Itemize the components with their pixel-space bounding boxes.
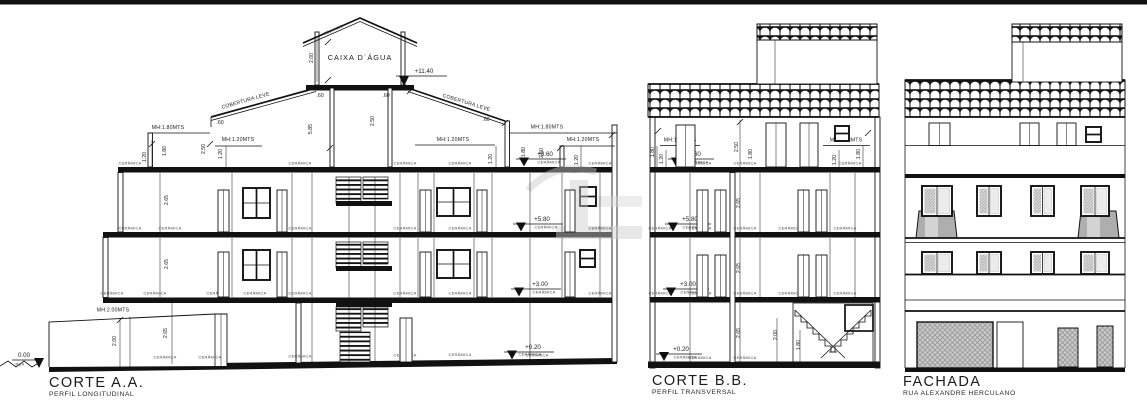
dim-label: 1.20 bbox=[659, 154, 665, 164]
window-pane bbox=[991, 255, 999, 272]
parapet-height-label: MH:1.80MTS bbox=[531, 125, 564, 131]
staircase bbox=[793, 303, 873, 362]
ceramica-label: CERÂMICA bbox=[449, 291, 472, 296]
elevation-300-label: +3.00 bbox=[680, 281, 696, 288]
window-pane bbox=[1084, 189, 1094, 214]
corte-aa-subtitle: PERFIL LONGITUDINAL bbox=[49, 391, 134, 398]
slab-300 bbox=[103, 298, 617, 304]
parapet-wall bbox=[560, 146, 564, 167]
ceramica-label: CERÂMICA bbox=[144, 291, 167, 296]
slab-band bbox=[905, 174, 1125, 178]
dim-label: 5.85 bbox=[308, 124, 314, 134]
ceramica-label: CERÂMICA bbox=[533, 290, 556, 295]
ground-floor-openings bbox=[917, 322, 1113, 368]
dim-label: 2.50 bbox=[370, 116, 376, 126]
roof-slope-right bbox=[408, 88, 505, 121]
street-level-arrow bbox=[34, 358, 44, 368]
ceramica-label: CERÂMICA bbox=[734, 226, 757, 231]
dim-label: 2.00 bbox=[309, 53, 315, 63]
ceramica-label: CERÂMICA bbox=[674, 355, 697, 360]
dim-label: 2.50 bbox=[201, 144, 207, 154]
roof-tiles bbox=[757, 24, 877, 40]
dim-label: 2.65 bbox=[736, 328, 742, 338]
window-pane bbox=[980, 189, 988, 214]
corte-aa-section: 0.00 RUA MH:2.00MTS 2.00 2.65 MH:1.80MTS… bbox=[0, 18, 617, 372]
ceramica-label: CERÂMICA bbox=[526, 353, 549, 358]
parapet-height-label: MH:1.20MTS bbox=[567, 137, 600, 143]
roof-label: COBERTURA LEVE bbox=[442, 93, 492, 113]
dim-label: 1.80 bbox=[650, 147, 656, 157]
elevation-020-label: +0.20 bbox=[673, 346, 689, 353]
ceramica-label: CERÂMICA bbox=[449, 226, 472, 231]
stair-tower-wall bbox=[330, 88, 334, 167]
dim-label: 1.20 bbox=[218, 149, 224, 159]
ceramica-label: CERÂMICA bbox=[289, 291, 312, 296]
window-pane bbox=[991, 189, 999, 214]
entrance-opening bbox=[997, 322, 1023, 368]
elevation-1140-label: +11.40 bbox=[415, 68, 434, 75]
ceramica-label: CERÂMICA bbox=[119, 161, 142, 166]
slab-300 bbox=[650, 297, 880, 303]
dim-tick bbox=[325, 39, 331, 45]
parapet-wall bbox=[505, 121, 510, 167]
ceramica-label: CERÂMICA bbox=[734, 161, 757, 166]
slab-580 bbox=[103, 232, 617, 238]
roof-tiles bbox=[905, 80, 1125, 117]
window-pane bbox=[1097, 255, 1107, 272]
dim-label: .60 bbox=[316, 93, 323, 99]
ceramica-label: CERÂMICA bbox=[289, 354, 312, 359]
ceramica-label: CERÂMICA bbox=[101, 291, 124, 296]
window-pane bbox=[1034, 255, 1042, 272]
ceramica-label: CERÂMICA bbox=[834, 226, 857, 231]
elevation-580-label: +5.80 bbox=[682, 216, 698, 223]
dim-label: 1.20 bbox=[142, 152, 148, 162]
exterior-wall bbox=[118, 173, 123, 233]
window-pane bbox=[1044, 255, 1052, 272]
ceramica-label: CERÂMICA bbox=[394, 291, 417, 296]
ceramica-label: CERÂMICA bbox=[244, 291, 267, 296]
fachada-subtitle: RUA ALEXANDRE HERCULANO bbox=[903, 390, 1016, 397]
dim-label: 1.80 bbox=[796, 340, 802, 350]
slab-860 bbox=[118, 167, 617, 173]
ceramica-label: CERÂMICA bbox=[394, 161, 417, 166]
dim-label: .60 bbox=[482, 117, 489, 123]
window-pane bbox=[939, 255, 950, 272]
exterior-wall bbox=[875, 117, 880, 368]
ceramica-label: CERÂMICA bbox=[538, 160, 561, 165]
ceramica-label: CERÂMICA bbox=[289, 161, 312, 166]
corte-aa-title: CORTE A.A. bbox=[49, 375, 144, 391]
corte-bb-subtitle: PERFIL TRANSVERSAL bbox=[652, 389, 736, 396]
water-tank-label: CAIXA D´ÁGUA bbox=[328, 53, 393, 62]
ceramica-label: CERÂMICA bbox=[589, 161, 612, 166]
window-pane bbox=[939, 189, 950, 214]
ceramica-label: CERÂMICA bbox=[199, 355, 222, 360]
elevation-arrow bbox=[399, 76, 409, 86]
window-pane bbox=[1084, 255, 1094, 272]
top-border bbox=[0, 0, 1147, 5]
water-tank-structure bbox=[1012, 24, 1122, 82]
architectural-drawing: 0.00 RUA MH:2.00MTS 2.00 2.65 MH:1.80MTS… bbox=[0, 0, 1147, 409]
window-pane bbox=[980, 255, 988, 272]
ground-slab bbox=[648, 362, 880, 369]
ceramica-label: CERÂMICA bbox=[649, 291, 672, 296]
roof-tiles bbox=[1012, 24, 1122, 42]
ceramica-label: CERÂMICA bbox=[649, 226, 672, 231]
ceramica-label: CERÂMICA bbox=[449, 161, 472, 166]
dim-tick bbox=[325, 77, 331, 83]
interior-wall bbox=[730, 173, 735, 363]
water-tank-structure bbox=[757, 24, 877, 84]
stair-tower-wall bbox=[388, 88, 392, 167]
window-pane bbox=[1034, 189, 1042, 214]
dim-label: 1.20 bbox=[488, 154, 494, 164]
dim-tick bbox=[207, 141, 213, 147]
ceramica-label: CERÂMICA bbox=[394, 226, 417, 231]
ceramica-label: CERÂMICA bbox=[535, 225, 558, 230]
dim-label: 2.00 bbox=[773, 330, 779, 340]
window-pane bbox=[1097, 189, 1107, 214]
elevation-580-label: +5.80 bbox=[534, 216, 550, 223]
elevation-860-label: +8.60 bbox=[537, 151, 553, 158]
staircase bbox=[336, 177, 392, 362]
parapet-height-label: MH:1.20MTS bbox=[437, 137, 470, 143]
dim-label: 1.80 bbox=[521, 147, 527, 157]
dim-label: 2.00 bbox=[112, 336, 118, 346]
ceramica-label: CERÂMICA bbox=[449, 352, 472, 357]
ceramica-label: CERÂMICA bbox=[589, 226, 612, 231]
dim-label: 2.65 bbox=[163, 328, 169, 338]
dim-label: 2.65 bbox=[736, 198, 742, 208]
ceramica-label: CERÂMICA bbox=[119, 226, 142, 231]
ceramica-label: CERÂMICA bbox=[734, 291, 757, 296]
slab-860 bbox=[650, 167, 880, 173]
window-pane bbox=[925, 189, 936, 214]
dim-label: 2.50 bbox=[734, 142, 740, 152]
corte-bb-section: MH:1.20MTS MH:1.20MTS 1.80 1.20 2.50 1.8… bbox=[648, 24, 880, 368]
ground-slab bbox=[905, 368, 1125, 373]
dim-label: 1.20 bbox=[574, 155, 580, 165]
window-pane bbox=[925, 255, 936, 272]
street-elevation-label: 0.00 bbox=[18, 352, 31, 359]
dim-label: .60 bbox=[216, 120, 223, 126]
garage-door bbox=[917, 322, 993, 368]
elevation-300-label: +3.00 bbox=[532, 281, 548, 288]
drawing-titles: CORTE A.A. PERFIL LONGITUDINAL CORTE B.B… bbox=[49, 373, 1016, 398]
exterior-wall bbox=[103, 238, 108, 298]
slab-580 bbox=[650, 232, 880, 238]
dim-label: 2.65 bbox=[736, 263, 742, 273]
ceramica-label: CERÂMICA bbox=[734, 355, 757, 360]
parapet-height-label: MH:1.80MTS bbox=[152, 125, 185, 131]
ceramica-label: CERÂMICA bbox=[154, 355, 177, 360]
water-tank: TELHADO CAIXA D´ÁGUA 2.00 +11.40 bbox=[303, 18, 447, 91]
wall-height-label: MH:2.00MTS bbox=[97, 308, 130, 314]
dim-label: 1.80 bbox=[856, 149, 862, 159]
ceramica-label: CERÂMICA bbox=[839, 161, 862, 166]
dim-label: 1.20 bbox=[832, 155, 838, 165]
dim-label: 2.65 bbox=[164, 195, 170, 205]
window-pane bbox=[1044, 189, 1052, 214]
service-door bbox=[1097, 326, 1113, 367]
elevation-020-label: +0.20 bbox=[525, 344, 541, 351]
exterior-wall bbox=[612, 125, 617, 362]
ceramica-label: CERÂMICA bbox=[589, 291, 612, 296]
street-name-label: RUA bbox=[15, 362, 24, 367]
corte-bb-title: CORTE B.B. bbox=[652, 373, 748, 389]
ceramica-label: CERÂMICA bbox=[159, 226, 182, 231]
service-door bbox=[1058, 328, 1078, 367]
dim-label: .60 bbox=[382, 93, 389, 99]
fachada-title: FACHADA bbox=[903, 374, 981, 390]
ceramica-label: CERÂMICA bbox=[289, 226, 312, 231]
dim-tick bbox=[655, 128, 661, 134]
dim-tick bbox=[865, 130, 871, 136]
parapet-height-label: MH:1.20MTS bbox=[222, 137, 255, 143]
dim-label: 1.80 bbox=[748, 149, 754, 159]
dim-label: 2.65 bbox=[164, 259, 170, 269]
dim-label: 1.80 bbox=[162, 146, 168, 156]
ceramica-label: CERÂMICA bbox=[834, 291, 857, 296]
roof-tiles bbox=[648, 84, 879, 117]
